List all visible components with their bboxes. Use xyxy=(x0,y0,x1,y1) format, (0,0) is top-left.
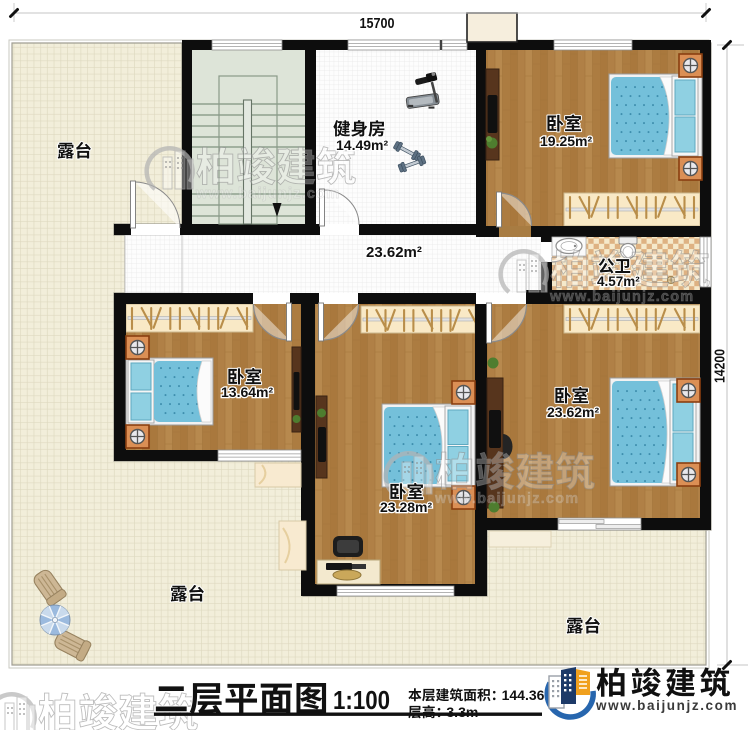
svg-text:14200: 14200 xyxy=(712,349,729,383)
svg-text:www.baijunjz.com: www.baijunjz.com xyxy=(434,491,579,507)
svg-text:23.28m²: 23.28m² xyxy=(380,499,432,515)
svg-text:14.49m²: 14.49m² xyxy=(336,137,388,153)
svg-text:www.baijunjz.com: www.baijunjz.com xyxy=(595,698,738,713)
svg-text:15700: 15700 xyxy=(360,15,395,32)
svg-text:13.64m²: 13.64m² xyxy=(221,384,273,400)
svg-text:1:100: 1:100 xyxy=(333,685,390,715)
svg-text:19.25m²: 19.25m² xyxy=(540,133,592,149)
svg-text:23.62m²: 23.62m² xyxy=(366,244,422,261)
svg-text:23.62m²: 23.62m² xyxy=(547,404,599,420)
svg-text:www.baijunjz.com: www.baijunjz.com xyxy=(195,186,340,202)
svg-text:3.3m: 3.3m xyxy=(446,704,478,720)
svg-text:4.57m²: 4.57m² xyxy=(597,274,640,289)
svg-text:www.baijunjz.com: www.baijunjz.com xyxy=(549,289,694,305)
